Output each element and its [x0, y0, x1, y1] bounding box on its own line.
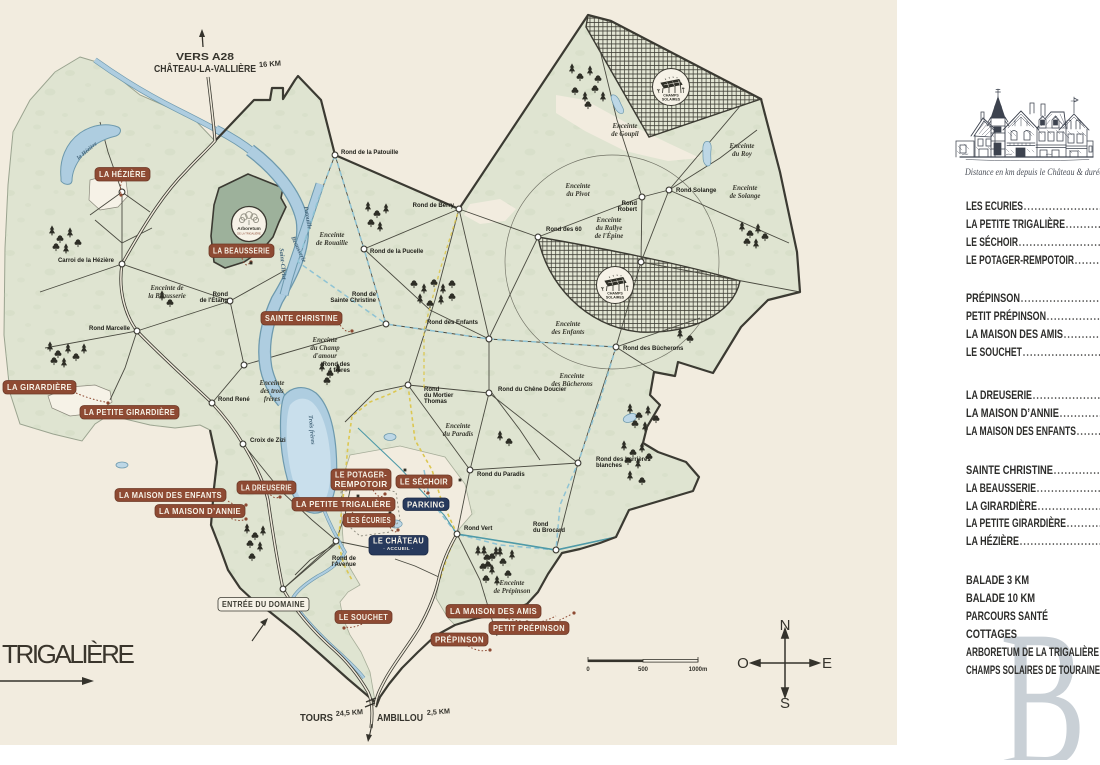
- svg-text:Enceinte: Enceinte: [499, 580, 525, 587]
- svg-text:LA HÉZIÈRE: LA HÉZIÈRE: [966, 535, 1019, 548]
- svg-text:PRÉPINSON: PRÉPINSON: [966, 292, 1020, 305]
- svg-text:SOLAIRES: SOLAIRES: [606, 296, 625, 300]
- svg-text:1000m: 1000m: [689, 667, 708, 673]
- svg-text:LE POTAGER-: LE POTAGER-: [335, 471, 387, 480]
- svg-text:l'Avenue: l'Avenue: [331, 562, 356, 568]
- svg-text:PETIT PRÉPINSON: PETIT PRÉPINSON: [493, 623, 565, 633]
- svg-text:LA DREUSERIE: LA DREUSERIE: [241, 483, 292, 492]
- svg-text:Robert: Robert: [618, 207, 637, 213]
- svg-text:Sainte Christine: Sainte Christine: [330, 298, 376, 304]
- svg-text:LE SOUCHET: LE SOUCHET: [966, 347, 1022, 359]
- svg-text:VERS A28: VERS A28: [176, 51, 234, 63]
- svg-text:SOLAIRES: SOLAIRES: [662, 98, 681, 102]
- svg-text:LA MAISON DES AMIS: LA MAISON DES AMIS: [450, 607, 537, 616]
- svg-text:Croix de Zizi: Croix de Zizi: [250, 438, 286, 444]
- svg-text:Rond de la Pucelle: Rond de la Pucelle: [370, 249, 424, 255]
- svg-text:LA MAISON DES ENFANTS: LA MAISON DES ENFANTS: [966, 426, 1076, 438]
- svg-text:blanches: blanches: [596, 463, 623, 469]
- svg-text:Enceinte: Enceinte: [729, 143, 755, 150]
- svg-text:LE SOUCHET: LE SOUCHET: [339, 613, 388, 622]
- svg-text:Rond du Paradis: Rond du Paradis: [477, 472, 525, 478]
- svg-text:frères: frères: [264, 396, 281, 403]
- svg-text:Distance en km depuis le Châte: Distance en km depuis le Château & durée: [964, 167, 1100, 178]
- svg-text:de l'Étang: de l'Étang: [200, 296, 229, 304]
- svg-text:de Solange: de Solange: [730, 193, 761, 200]
- svg-text:Enceinte: Enceinte: [559, 373, 585, 380]
- svg-text:Rond René: Rond René: [218, 397, 250, 403]
- svg-text:500: 500: [638, 667, 649, 673]
- svg-text:de Prépinson: de Prépinson: [494, 588, 531, 595]
- svg-text:Rond Marcelle: Rond Marcelle: [89, 326, 131, 332]
- svg-text:Rond Solange: Rond Solange: [676, 188, 717, 194]
- svg-text:BALADE 10 KM: BALADE 10 KM: [966, 593, 1035, 605]
- svg-text:O: O: [737, 655, 749, 672]
- svg-text:d'amour: d'amour: [313, 353, 337, 360]
- svg-text:PARCOURS SANTÉ: PARCOURS SANTÉ: [966, 610, 1048, 623]
- svg-text:du Pivot: du Pivot: [566, 191, 590, 198]
- svg-text:Enceinte: Enceinte: [555, 321, 581, 328]
- svg-text:CHÂTEAU-LA-VALLIÈRE: CHÂTEAU-LA-VALLIÈRE: [154, 62, 256, 75]
- svg-text:du Champ: du Champ: [310, 345, 340, 352]
- svg-text:Enceinte de: Enceinte de: [149, 285, 183, 292]
- svg-text:la Beausserie: la Beausserie: [148, 293, 186, 300]
- svg-text:PRÉPINSON: PRÉPINSON: [435, 634, 484, 644]
- svg-text:Rond des 60: Rond des 60: [546, 227, 582, 233]
- svg-text:Enceinte: Enceinte: [565, 183, 591, 190]
- svg-text:LA HÉZIÈRE: LA HÉZIÈRE: [99, 169, 146, 179]
- svg-text:4 frères: 4 frères: [328, 368, 350, 374]
- svg-text:Enceinte: Enceinte: [612, 123, 638, 130]
- svg-text:Enceinte: Enceinte: [312, 337, 338, 344]
- svg-text:LA PETITE GIRARDIÈRE: LA PETITE GIRARDIÈRE: [84, 407, 175, 417]
- svg-text:LES ÉCURIES: LES ÉCURIES: [347, 515, 391, 525]
- svg-text:LA GIRARDIÈRE: LA GIRARDIÈRE: [966, 500, 1037, 513]
- svg-text:de l'Épine: de l'Épine: [595, 232, 624, 240]
- svg-text:du Roy: du Roy: [732, 151, 753, 158]
- svg-text:Rond de la Patouille: Rond de la Patouille: [341, 150, 399, 156]
- svg-text:Enceinte: Enceinte: [596, 217, 622, 224]
- svg-text:Enceinte: Enceinte: [732, 185, 758, 192]
- svg-text:SAINTE CHRISTINE: SAINTE CHRISTINE: [966, 465, 1053, 477]
- svg-text:Thomas: Thomas: [424, 399, 448, 405]
- svg-text:Rond des Enfants: Rond des Enfants: [427, 320, 479, 326]
- svg-text:COTTAGES: COTTAGES: [966, 629, 1017, 641]
- svg-text:S: S: [780, 695, 790, 712]
- svg-text:LE SÉCHOIR: LE SÉCHOIR: [400, 476, 448, 486]
- svg-text:CHAMPS SOLAIRES DE TOURAINE: CHAMPS SOLAIRES DE TOURAINE: [966, 665, 1100, 677]
- svg-text:AMBILLOU: AMBILLOU: [377, 712, 423, 724]
- svg-text:LES ECURIES: LES ECURIES: [966, 201, 1023, 213]
- svg-text:de Goupil: de Goupil: [611, 131, 638, 138]
- svg-text:Rond de Berry: Rond de Berry: [413, 203, 455, 209]
- svg-text:de Rouaille: de Rouaille: [316, 240, 348, 247]
- svg-text:des Bûcherons: des Bûcherons: [551, 381, 593, 388]
- svg-text:LA PETITE TRIGALIÈRE: LA PETITE TRIGALIÈRE: [296, 499, 391, 509]
- svg-text:du Paradis: du Paradis: [443, 431, 474, 438]
- svg-text:LE POTAGER-REMPOTOIR: LE POTAGER-REMPOTOIR: [966, 255, 1075, 267]
- svg-text:LA MAISON DES AMIS: LA MAISON DES AMIS: [966, 329, 1063, 341]
- svg-text:Rond des Bûcherons: Rond des Bûcherons: [623, 346, 684, 352]
- svg-text:TRIGALIÈRE: TRIGALIÈRE: [2, 639, 138, 669]
- svg-text:16 KM: 16 KM: [259, 59, 282, 70]
- svg-text:Rond Vert: Rond Vert: [464, 526, 492, 532]
- svg-text:des trois: des trois: [260, 388, 284, 395]
- svg-text:PARKING: PARKING: [407, 499, 445, 509]
- svg-text:LA PETITE GIRARDIÈRE: LA PETITE GIRARDIÈRE: [966, 517, 1066, 530]
- svg-text:BALADE 3 KM: BALADE 3 KM: [966, 575, 1029, 587]
- svg-text:2,5 KM: 2,5 KM: [427, 706, 451, 717]
- svg-text:LE SÉCHOIR: LE SÉCHOIR: [966, 236, 1019, 249]
- svg-text:LA PETITE TRIGALIÈRE: LA PETITE TRIGALIÈRE: [966, 218, 1065, 231]
- svg-text:LA MAISON DES ENFANTS: LA MAISON DES ENFANTS: [119, 491, 222, 500]
- svg-text:LA MAISON D’ANNIE: LA MAISON D’ANNIE: [966, 408, 1059, 420]
- svg-text:TOURS: TOURS: [300, 712, 333, 724]
- svg-text:LA BEAUSSERIE: LA BEAUSSERIE: [966, 483, 1036, 495]
- svg-text:SAINTE CHRISTINE: SAINTE CHRISTINE: [265, 314, 338, 323]
- svg-text:24,5 KM: 24,5 KM: [336, 707, 364, 718]
- svg-text:du Brocard: du Brocard: [533, 528, 565, 534]
- svg-text:Enceinte: Enceinte: [259, 380, 285, 387]
- svg-text:du Rallye: du Rallye: [596, 225, 623, 232]
- svg-text:Arboretum: Arboretum: [237, 226, 260, 231]
- svg-text:LA GIRARDIÈRE: LA GIRARDIÈRE: [7, 382, 72, 392]
- svg-text:LA MAISON D’ANNIE: LA MAISON D’ANNIE: [159, 507, 241, 516]
- svg-text:Enceinte: Enceinte: [445, 423, 471, 430]
- svg-text:· ACCUEIL ·: · ACCUEIL ·: [383, 546, 413, 551]
- svg-text:REMPOTOIR: REMPOTOIR: [334, 480, 387, 489]
- svg-text:LA DREUSERIE: LA DREUSERIE: [966, 390, 1032, 402]
- svg-text:Enceinte: Enceinte: [319, 232, 345, 239]
- svg-text:N: N: [780, 617, 791, 634]
- svg-text:Carroi de la Hézière: Carroi de la Hézière: [58, 258, 115, 264]
- svg-text:ENTRÉE DU DOMAINE: ENTRÉE DU DOMAINE: [222, 600, 305, 609]
- svg-text:E: E: [822, 655, 832, 672]
- svg-text:PETIT PRÉPINSON: PETIT PRÉPINSON: [966, 310, 1046, 323]
- svg-text:des Enfants: des Enfants: [551, 329, 584, 336]
- svg-text:ARBORETUM DE LA TRIGALIÈRE: ARBORETUM DE LA TRIGALIÈRE: [966, 646, 1099, 659]
- svg-text:LA BEAUSSERIE: LA BEAUSSERIE: [213, 247, 270, 256]
- svg-text:LE CHÂTEAU: LE CHÂTEAU: [373, 534, 424, 545]
